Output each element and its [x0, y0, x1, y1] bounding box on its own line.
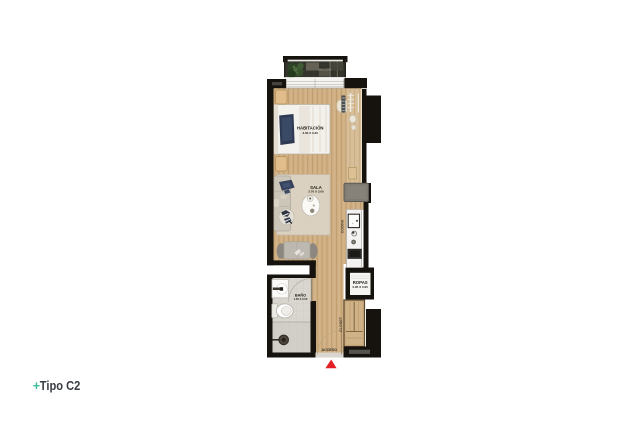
svg-text:CLOSET: CLOSET	[339, 316, 343, 332]
svg-text:Tipo C2: Tipo C2	[40, 379, 81, 393]
svg-text:2.70 X 3.00: 2.70 X 3.00	[308, 190, 324, 194]
svg-text:ROPAS: ROPAS	[353, 280, 368, 285]
svg-text:ACCESO: ACCESO	[322, 348, 338, 352]
svg-text:0.85 X 0.95: 0.85 X 0.95	[353, 285, 369, 289]
svg-text:1.50 X 2.50: 1.50 X 2.50	[294, 297, 308, 301]
svg-text:HABITACIÓN: HABITACIÓN	[297, 126, 324, 131]
svg-text:BALCON: BALCON	[319, 67, 331, 71]
svg-text:3.00 X 3.30: 3.00 X 3.30	[303, 131, 319, 135]
svg-text:BAÑO: BAÑO	[295, 292, 306, 297]
svg-text:COCINA: COCINA	[340, 219, 344, 233]
